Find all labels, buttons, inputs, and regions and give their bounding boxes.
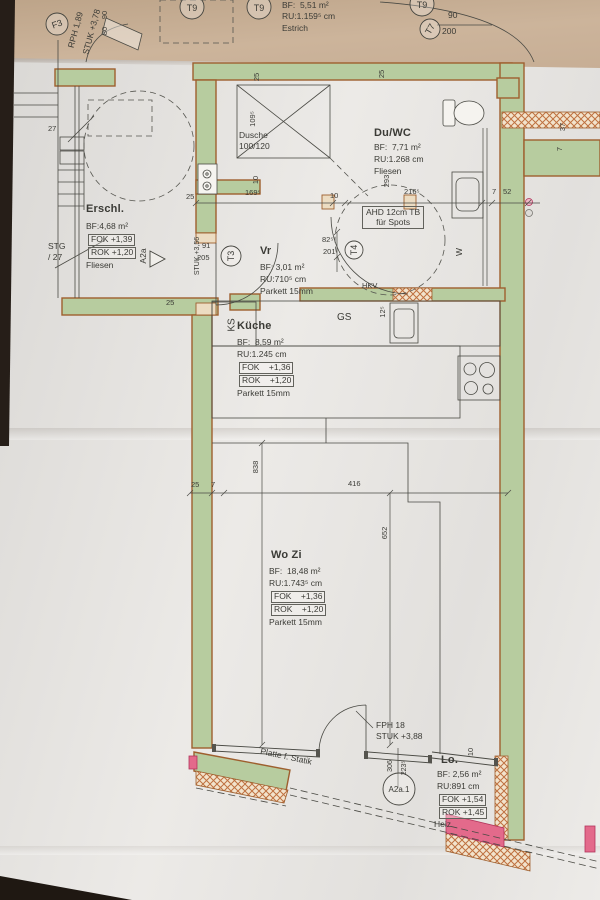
kueche-floor: Parkett 15mm (237, 389, 290, 399)
heiz-label: Heiz (434, 820, 451, 830)
dim-10-lo: 10 (467, 748, 475, 756)
dim-91: 91 (202, 242, 210, 250)
wozi-bf: BF: 18,48 m² (269, 567, 321, 577)
stair-count: / 27 (48, 253, 62, 263)
dim-293: 293 (383, 175, 391, 188)
dim-216: 216⁵ (404, 188, 420, 196)
wozi-rok: ROK +1,20 (271, 604, 326, 616)
wozi-fok: FOK +1,36 (271, 591, 325, 603)
duwc-bf: BF: 7,71 m² (374, 143, 421, 153)
dusche-label: Dusche (239, 131, 268, 141)
vr-floor: Parkett 15mm (260, 287, 313, 297)
erschl-fok: FOK +1,39 (88, 234, 135, 246)
kueche-ru: RU:1.245 cm (237, 350, 287, 360)
platte-statik-note: Platte f. Statik (259, 747, 312, 767)
dim-201: 201 (323, 248, 336, 256)
ahd-note: AHD 12cm TBfür Spots (362, 206, 424, 229)
annotation-layer: BF: 5,51 m² RU:1.159⁵ cm Estrich 90 200 … (0, 0, 600, 900)
ahd-line1: AHD 12cm TB (366, 207, 420, 217)
dim-652: 652 (381, 527, 389, 540)
dim-7-right: 7 (492, 188, 496, 196)
duwc-ru: RU:1.268 cm (374, 155, 424, 165)
room-lo: Lo. (441, 754, 458, 766)
lo-fok: FOK +1,54 (439, 794, 486, 806)
dim-25-topwall-1: 25 (253, 73, 261, 81)
dim-223: 223⁵ (401, 761, 409, 776)
dim-37: 37 (559, 123, 567, 131)
dim-25-topwall-2: 25 (378, 70, 386, 78)
door-height: 200 (442, 27, 456, 37)
dim-90: 90 (101, 11, 109, 19)
erschl-bf: BF:4,68 m² (86, 222, 128, 232)
vr-ru: RU:710⁵ cm (260, 275, 306, 285)
door-width: 90 (448, 11, 457, 21)
dim-25-vr: 25 (186, 193, 194, 201)
stair-label: STG (48, 242, 65, 252)
wozi-floor: Parkett 15mm (269, 618, 322, 628)
top-room-ru: RU:1.159⁵ cm (282, 12, 335, 22)
dishwasher-label: GS (337, 312, 351, 323)
dim-82: 82⁵ (322, 236, 333, 244)
hkv-label: HKV (362, 282, 377, 290)
kueche-fok: FOK +1,36 (239, 362, 293, 374)
washer-w: W (455, 248, 465, 256)
dim-12: 12⁵ (379, 306, 387, 317)
ahd-line2: für Spots (376, 217, 410, 227)
dim-169: 169⁵ (245, 189, 261, 197)
vr-bf2: BF: 3,01 m² (260, 263, 304, 273)
fph-18: FPH 18 (376, 721, 405, 731)
dusche-size: 100/120 (239, 142, 270, 152)
dim-10-door: 10 (330, 192, 338, 200)
dim-838: 838 (252, 461, 260, 474)
fridge-label: KS (226, 318, 237, 331)
kueche-bf: BF: 8,59 m² (237, 338, 284, 348)
top-room-bf: BF: 5,51 m² (282, 1, 329, 11)
lo-rok: ROK +1,45 (439, 807, 487, 819)
dim-416: 416 (348, 480, 361, 488)
floorplan-photo: F3 T9 T9 T9 T7 T3 T4 A2a.1 BF: 5,51 m² R… (0, 0, 600, 900)
room-duwc: Du/WC (374, 127, 411, 139)
room-erschl: Erschl. (86, 203, 124, 215)
top-room-floor: Estrich (282, 24, 308, 34)
dim-25-wall: 25 (191, 481, 199, 489)
dim-109: 109⁵ (249, 111, 257, 127)
dim-205: 205 (197, 254, 210, 262)
dim-10-vr: 10 (252, 176, 260, 184)
stuk-388: STUK +3,88 (376, 732, 423, 742)
room-vr: Vr (260, 245, 271, 257)
dim-52: 52 (503, 188, 511, 196)
room-kueche: Küche (237, 320, 272, 332)
section-a2a: A2a (139, 248, 149, 263)
erschl-rok: ROK +1,20 (88, 247, 136, 259)
dim-25-lwall: 25 (166, 299, 174, 307)
dim-7-wall: 7 (556, 147, 564, 151)
stair-count-upper: 27 (48, 125, 56, 133)
wozi-ru: RU:1.743⁵ cm (269, 579, 322, 589)
dim-80: 80 (101, 27, 109, 35)
room-wozi: Wo Zi (271, 549, 302, 561)
dim-306: 306 (387, 760, 395, 772)
lo-bf: BF: 2,56 m² (437, 770, 481, 780)
kueche-rok: ROK +1,20 (239, 375, 294, 387)
erschl-floor: Fliesen (86, 261, 113, 271)
dim-7-gap: 7 (211, 481, 215, 489)
lo-ru: RU:891 cm (437, 782, 480, 792)
